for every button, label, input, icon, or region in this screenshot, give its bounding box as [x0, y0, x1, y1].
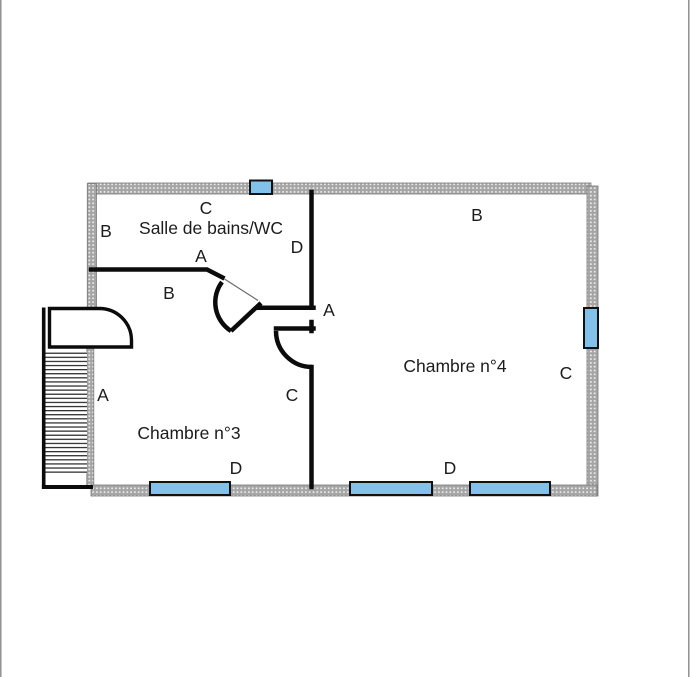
staircase-treads	[46, 352, 88, 474]
floor-plan-drawing: C B A D B B A C A C D D Salle de bains/W…	[0, 0, 690, 677]
wall-label: B	[163, 283, 175, 303]
window-top-wall	[250, 181, 272, 195]
window-bottom-middle	[350, 482, 432, 495]
wall-label: B	[471, 205, 483, 225]
wall-label: C	[560, 363, 573, 383]
room-label-chambre-4: Chambre n°4	[403, 356, 507, 376]
chambre-door-swing-arc	[276, 331, 312, 367]
floor-plan-page: C B A D B B A C A C D D Salle de bains/W…	[0, 0, 690, 677]
wall-label: C	[286, 385, 299, 405]
window-bottom-right	[470, 482, 550, 495]
room-label-salle-de-bains: Salle de bains/WC	[139, 218, 283, 238]
wall-left-lower	[87, 348, 94, 486]
wall-bathroom-south	[91, 270, 223, 278]
wall-label: D	[230, 458, 243, 478]
room-label-chambre-3: Chambre n°3	[137, 423, 240, 443]
wall-label: A	[195, 246, 207, 266]
wall-left-upper	[87, 184, 96, 309]
wall-label: D	[291, 237, 304, 257]
bathroom-door-swing-arc	[215, 282, 231, 331]
wall-label: C	[200, 198, 213, 218]
wall-top	[88, 183, 591, 194]
wall-label: B	[100, 221, 112, 241]
window-right-wall	[584, 308, 598, 348]
bathroom-door-chord	[225, 279, 259, 301]
window-bottom-left	[150, 482, 230, 495]
wall-label: A	[97, 385, 109, 405]
entrance-door	[50, 308, 132, 347]
wall-label: A	[323, 300, 335, 320]
bathroom-door-leaf	[231, 303, 261, 331]
wall-label: D	[444, 458, 457, 478]
labels: C B A D B B A C A C D D Salle de bains/W…	[97, 198, 572, 478]
